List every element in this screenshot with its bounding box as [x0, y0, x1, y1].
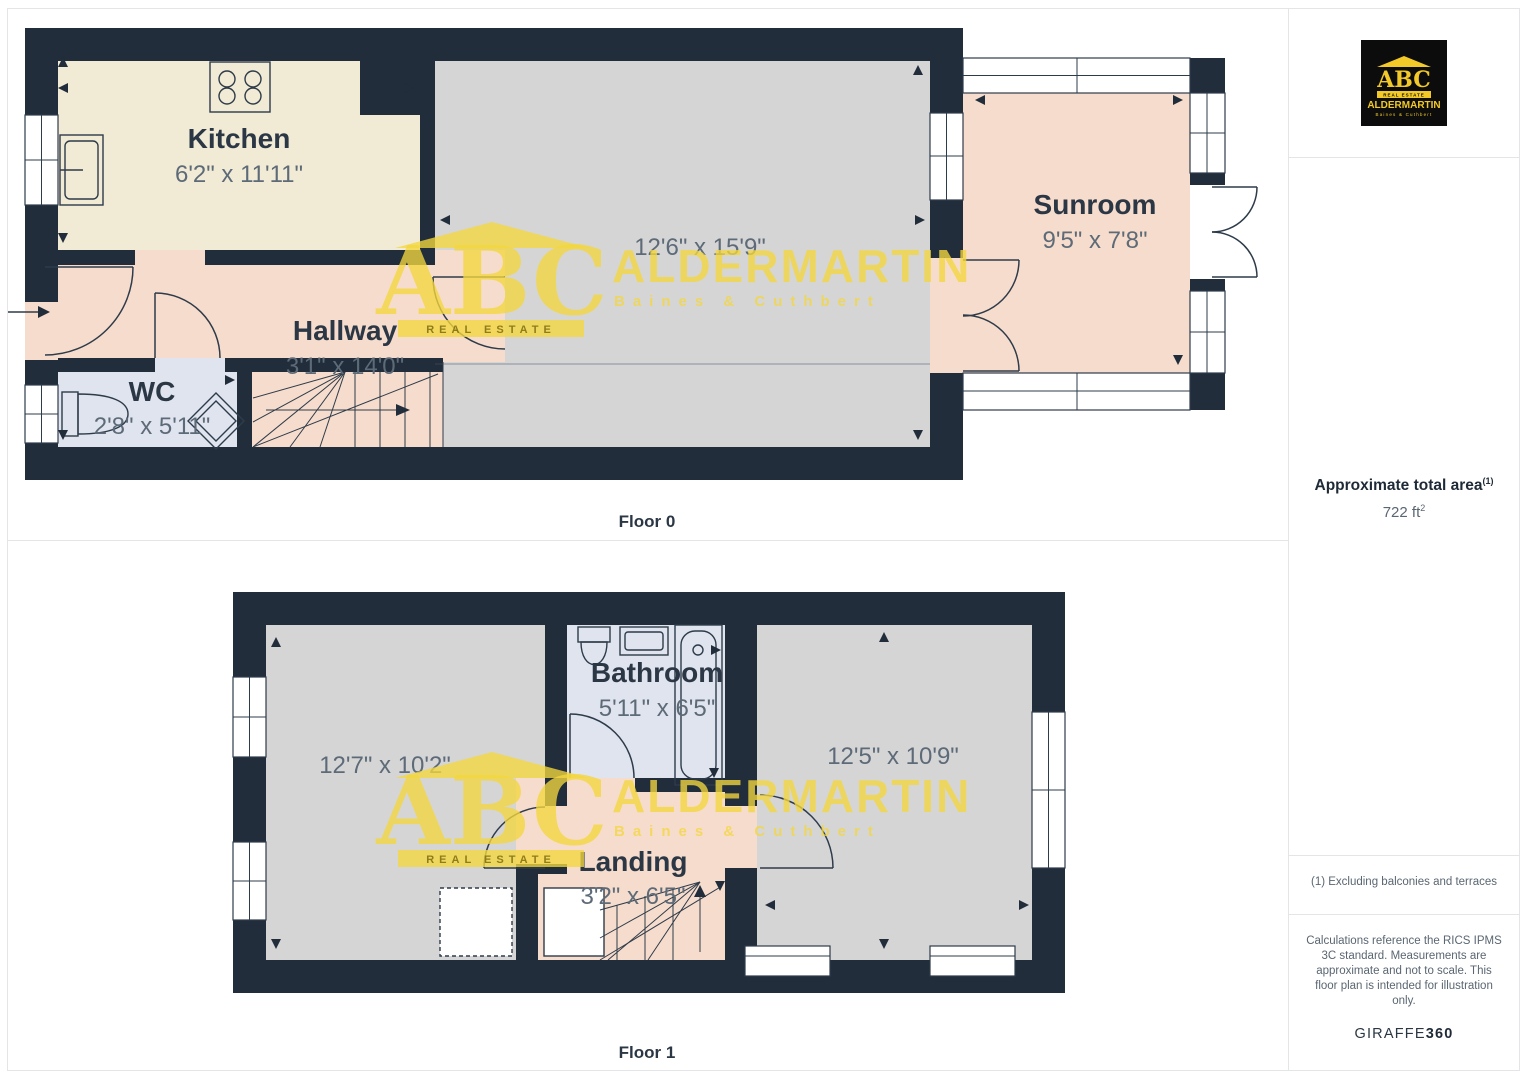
info-sidebar: ABC REAL ESTATE ALDERMARTIN Baines & Cut…: [1289, 9, 1519, 1070]
border-bottom: [7, 1070, 1520, 1071]
divider-sidebar-footnote-bottom: [1288, 914, 1520, 915]
sunroom-window-right-top: [1190, 93, 1225, 173]
kitchen-window: [25, 115, 58, 205]
floorplan-page: Kitchen 6'2" x 11'11" Hallway 3'1" x 14'…: [0, 0, 1527, 1080]
svg-text:ABC: ABC: [1376, 67, 1431, 93]
svg-text:Baines & Cuthbert: Baines & Cuthbert: [614, 823, 881, 840]
border-top: [7, 8, 1520, 9]
room-dims-sunroom: 9'5" x 7'8": [1043, 227, 1148, 254]
room-dims-bedroom2: 12'5" x 10'9": [827, 743, 959, 770]
svg-text:REAL ESTATE: REAL ESTATE: [426, 854, 556, 866]
svg-text:Baines & Cuthbert: Baines & Cuthbert: [614, 293, 881, 310]
wc-window: [25, 385, 58, 443]
border-right: [1519, 8, 1520, 1071]
svg-text:ALDERMARTIN: ALDERMARTIN: [1367, 100, 1440, 111]
divider-sidebar-vertical: [1288, 8, 1289, 1071]
divider-sidebar-footnote-top: [1288, 855, 1520, 856]
room-label-bathroom: Bathroom: [591, 657, 723, 688]
divider-floors: [7, 540, 1288, 541]
total-area-value: 722 ft2: [1289, 503, 1519, 521]
total-area-block: Approximate total area(1) 722 ft2: [1289, 476, 1519, 521]
disclaimer-text: Calculations reference the RICS IPMS 3C …: [1304, 934, 1504, 1009]
sunroom-window-right-bottom: [1190, 291, 1225, 373]
bedroom2-window-bottom-right: [930, 946, 1015, 976]
room-dims-hallway: 3'1" x 14'0": [286, 353, 404, 380]
floor0-svg: Kitchen 6'2" x 11'11" Hallway 3'1" x 14'…: [7, 8, 1288, 540]
room-label-sunroom: Sunroom: [1034, 189, 1157, 220]
bedroom1-window-upper: [233, 677, 266, 757]
bedroom1-cupboard-icon: [440, 888, 512, 956]
room-dims-wc: 2'8" x 5'11": [94, 413, 211, 440]
svg-text:Baines & Cuthbert: Baines & Cuthbert: [1376, 112, 1433, 117]
total-area-title: Approximate total area(1): [1289, 476, 1519, 495]
bedroom2-window-bottom-left: [745, 946, 830, 976]
sunroom-french-doors: [1212, 187, 1257, 277]
reception-sunroom-window: [930, 113, 963, 200]
area-footnote: (1) Excluding balconies and terraces: [1289, 876, 1519, 888]
floor1-svg: 12'7" x 10'2" Bathroom 5'11" x 6'5" Land…: [7, 540, 1288, 1071]
room-label-kitchen: Kitchen: [188, 123, 291, 154]
divider-sidebar-logo: [1288, 157, 1520, 158]
sunroom-window-bottom: [963, 373, 1190, 410]
sunroom-window-top: [963, 58, 1190, 93]
footnote-mark: (1): [1482, 476, 1493, 486]
bedroom1-window-lower: [233, 842, 266, 920]
svg-text:ALDERMARTIN: ALDERMARTIN: [612, 240, 971, 292]
room-dims-landing: 3'2" x 6'5": [581, 883, 686, 910]
agency-logo: ABC REAL ESTATE ALDERMARTIN Baines & Cut…: [1361, 40, 1447, 126]
room-dims-bathroom: 5'11" x 6'5": [599, 695, 716, 722]
room-label-wc: WC: [129, 376, 176, 407]
svg-text:REAL ESTATE: REAL ESTATE: [426, 324, 556, 336]
floor0-label: Floor 0: [619, 512, 676, 531]
bedroom2-window-right: [1032, 712, 1065, 868]
svg-text:ALDERMARTIN: ALDERMARTIN: [612, 770, 971, 822]
room-dims-kitchen: 6'2" x 11'11": [175, 161, 303, 188]
floor1-label: Floor 1: [619, 1043, 676, 1062]
giraffe360-brand: GIRAFFE360: [1289, 1026, 1519, 1042]
svg-text:REAL ESTATE: REAL ESTATE: [1383, 93, 1425, 98]
